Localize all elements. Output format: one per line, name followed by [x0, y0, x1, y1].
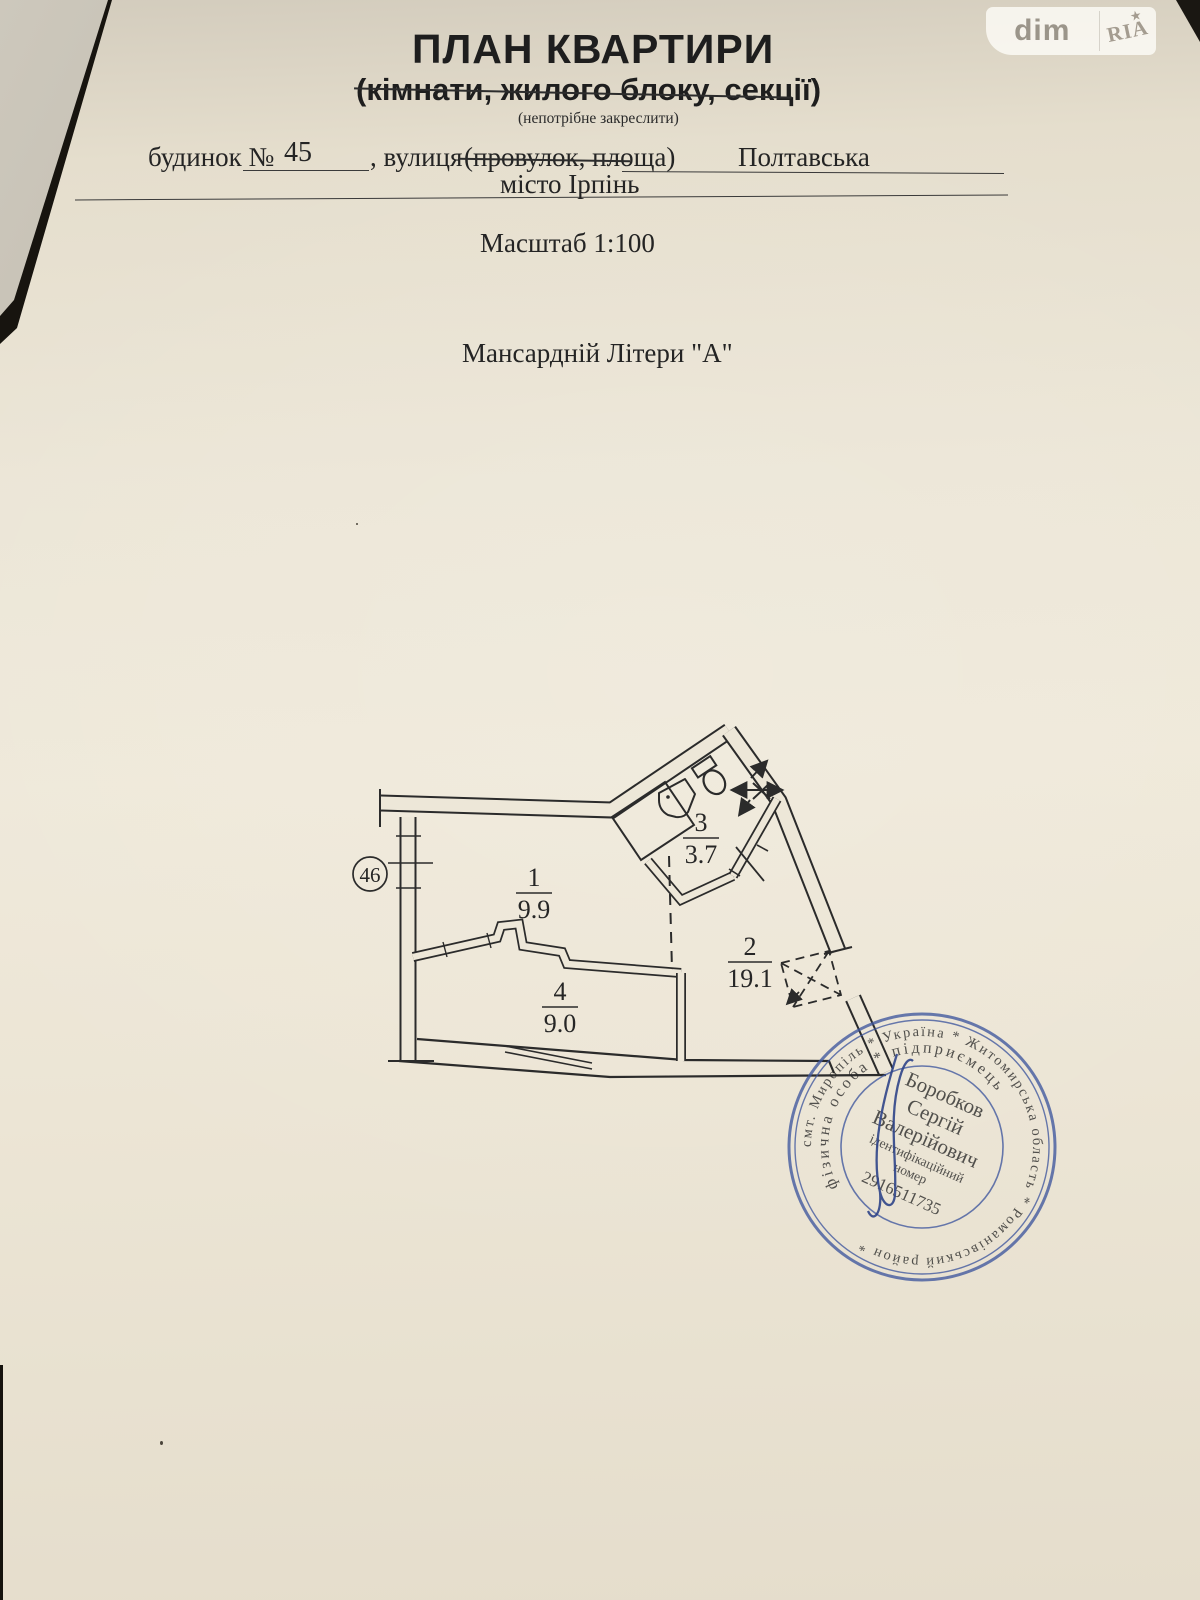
- dim-logo-text: dim: [986, 7, 1099, 55]
- ria-logo-text: RIA: [1105, 14, 1151, 47]
- room-area: 9.0: [544, 1009, 577, 1038]
- outer-walls: [380, 731, 886, 1077]
- stamp: смт. Миропіль * Україна * Житомирська об…: [789, 1014, 1055, 1280]
- room-label-4: 4 9.0: [542, 977, 578, 1038]
- hatch-symbol: [781, 947, 852, 1007]
- room-number: 2: [744, 932, 757, 961]
- floor-plan-drawing: 46 1 9.9 3 3.7 2 19.1 4 9.0 смт. Миропіл…: [0, 0, 1200, 1600]
- dashed-boundary: [669, 856, 672, 970]
- dim-ria-watermark: dim ★ RIA: [986, 7, 1156, 55]
- unit-number-bubble: 46: [353, 857, 387, 891]
- room-area: 3.7: [685, 840, 718, 869]
- unit-number: 46: [360, 863, 381, 887]
- partition-walls: [413, 799, 777, 1061]
- room-number: 3: [695, 808, 708, 837]
- room-area: 19.1: [727, 964, 773, 993]
- room-area: 9.9: [518, 895, 551, 924]
- toilet-symbol: [692, 756, 731, 799]
- ria-logo: ★ RIA: [1100, 7, 1156, 55]
- room-number: 4: [554, 977, 567, 1006]
- room-label-1: 1 9.9: [516, 863, 552, 924]
- room-label-2: 2 19.1: [727, 932, 773, 993]
- room-number: 1: [528, 863, 541, 892]
